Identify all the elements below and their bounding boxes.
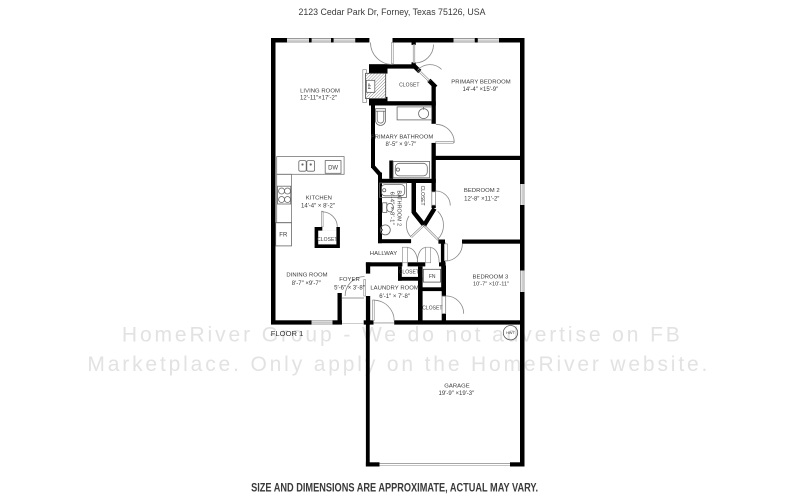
svg-text:10′-7″ ×10′-11″: 10′-7″ ×10′-11″ [473, 281, 509, 287]
svg-text:12′-8″ ×11′-2″: 12′-8″ ×11′-2″ [464, 196, 500, 202]
svg-text:Marketplace. Only apply on the: Marketplace. Only apply on the HomeRiver… [87, 353, 710, 376]
svg-text:2123 Cedar Park Dr, Forney, Te: 2123 Cedar Park Dr, Forney, Texas 75126,… [299, 7, 487, 18]
svg-text:LAUNDRY ROOM: LAUNDRY ROOM [370, 286, 419, 292]
svg-text:KITCHEN: KITCHEN [306, 196, 332, 202]
svg-text:LIVING ROOM: LIVING ROOM [300, 88, 340, 94]
svg-text:HALLWAY: HALLWAY [370, 251, 397, 257]
svg-text:FN: FN [429, 274, 436, 280]
svg-text:PRIMARY BATHROOM: PRIMARY BATHROOM [371, 134, 434, 140]
svg-text:BEDROOM 2: BEDROOM 2 [464, 188, 500, 194]
svg-text:BEDROOM 3: BEDROOM 3 [472, 275, 508, 281]
svg-text:CLOSET: CLOSET [317, 237, 337, 243]
svg-text:8′-7″ ×9′-7″: 8′-7″ ×9′-7″ [292, 281, 322, 287]
svg-text:FOYER: FOYER [339, 277, 360, 283]
svg-text:HomeRiver Group - We do not ad: HomeRiver Group - We do not advertise on… [122, 324, 683, 347]
svg-text:5′-6″ × 3′-8″: 5′-6″ × 3′-8″ [334, 285, 366, 291]
svg-text:CLOSET: CLOSET [419, 186, 425, 206]
svg-text:FP: FP [367, 83, 373, 89]
svg-text:PRIMARY BEDROOM: PRIMARY BEDROOM [451, 79, 510, 85]
svg-text:8′-5″ × 9′-7″: 8′-5″ × 9′-7″ [386, 142, 418, 148]
svg-text:14′-4″ × 8′-2″: 14′-4″ × 8′-2″ [301, 203, 336, 209]
svg-text:GARAGE: GARAGE [444, 383, 470, 389]
svg-text:DINING ROOM: DINING ROOM [286, 272, 327, 278]
svg-text:DW: DW [328, 166, 338, 172]
svg-text:CLOSET: CLOSET [399, 269, 419, 275]
svg-text:12′-11″×17′-2″: 12′-11″×17′-2″ [300, 96, 338, 102]
svg-text:BATHROOM 2: BATHROOM 2 [395, 190, 401, 226]
svg-text:6′-1″ × 7′-8″: 6′-1″ × 7′-8″ [379, 294, 411, 300]
svg-text:CLOSET: CLOSET [399, 83, 419, 89]
svg-text:FR: FR [279, 233, 288, 239]
svg-text:CLOSET: CLOSET [422, 305, 442, 311]
svg-text:SIZE AND DIMENSIONS ARE APPROX: SIZE AND DIMENSIONS ARE APPROXIMATE, ACT… [251, 483, 538, 495]
svg-text:6′-4″ × 8′-1″: 6′-4″ × 8′-1″ [389, 192, 395, 225]
svg-text:19′-9″ ×19′-3″: 19′-9″ ×19′-3″ [439, 391, 476, 397]
svg-text:14′-4″ ×15′-9″: 14′-4″ ×15′-9″ [463, 87, 500, 93]
